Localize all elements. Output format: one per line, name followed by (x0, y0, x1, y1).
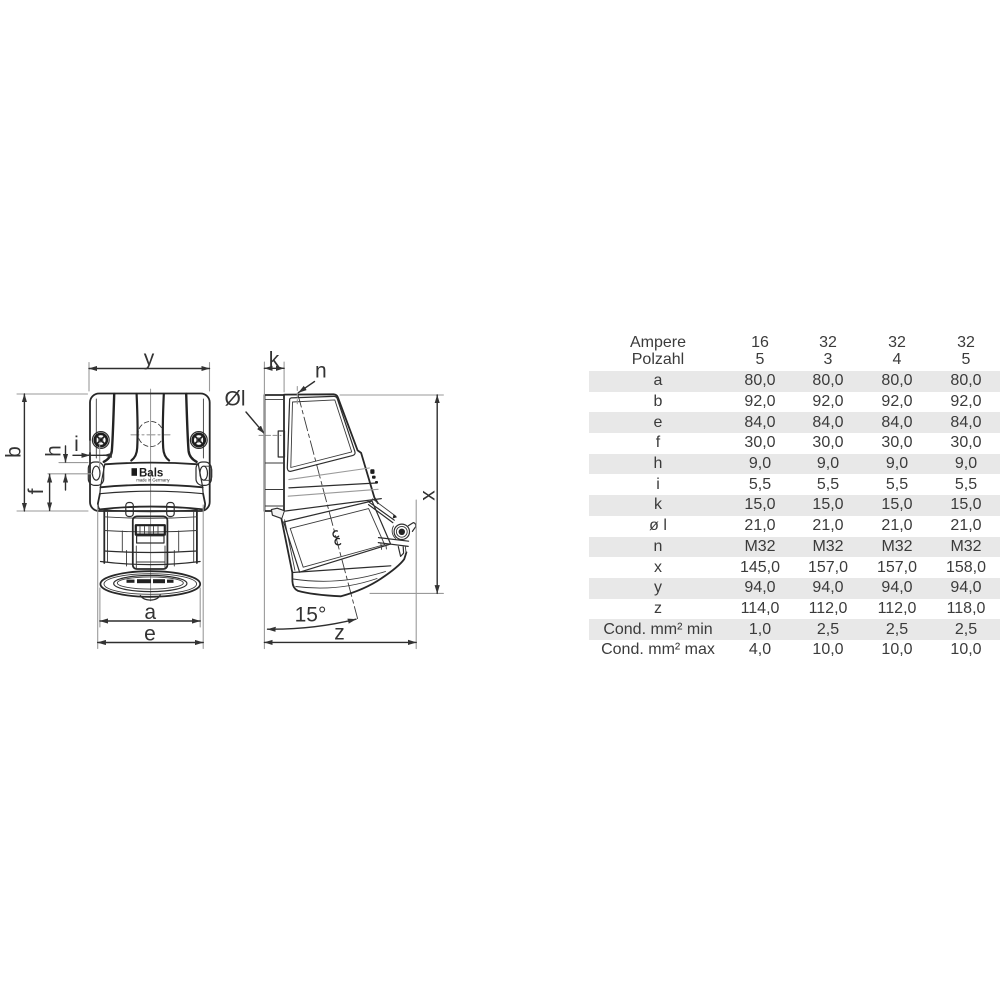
svg-text:x: x (417, 490, 440, 501)
svg-text:Øl: Øl (225, 388, 246, 411)
svg-text:15°: 15° (295, 604, 327, 627)
svg-text:k: k (269, 349, 280, 372)
svg-text:i: i (74, 433, 79, 456)
svg-text:h: h (43, 445, 66, 457)
svg-text:n: n (315, 360, 327, 383)
svg-text:z: z (334, 622, 345, 645)
svg-text:b: b (3, 446, 26, 458)
svg-text:f: f (25, 488, 48, 494)
svg-text:e: e (144, 622, 156, 645)
svg-text:a: a (144, 601, 156, 624)
svg-text:y: y (144, 347, 155, 370)
svg-text:made in Germany: made in Germany (136, 478, 170, 483)
